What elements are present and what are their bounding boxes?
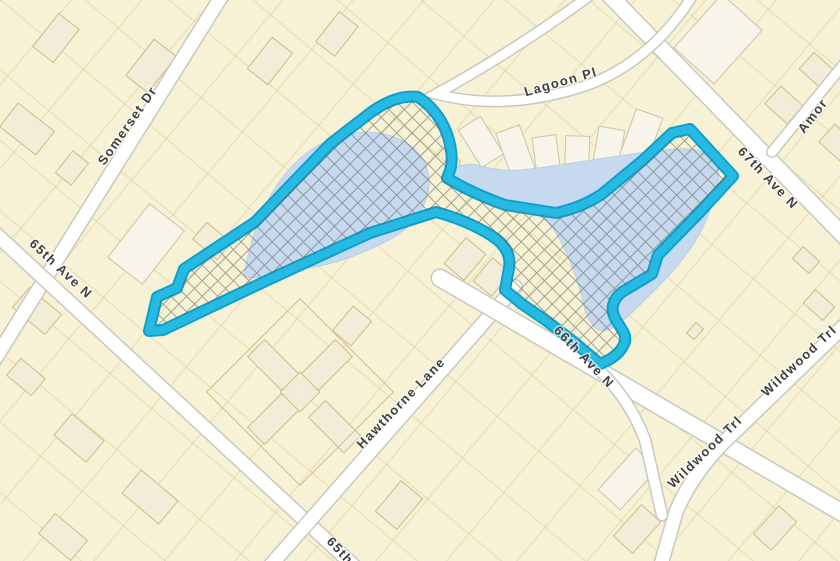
map-viewport[interactable]: Somerset Dr 65th Ave N 65th Ave N Lagoon… (0, 0, 840, 561)
map-canvas[interactable]: Somerset Dr 65th Ave N 65th Ave N Lagoon… (0, 0, 840, 561)
